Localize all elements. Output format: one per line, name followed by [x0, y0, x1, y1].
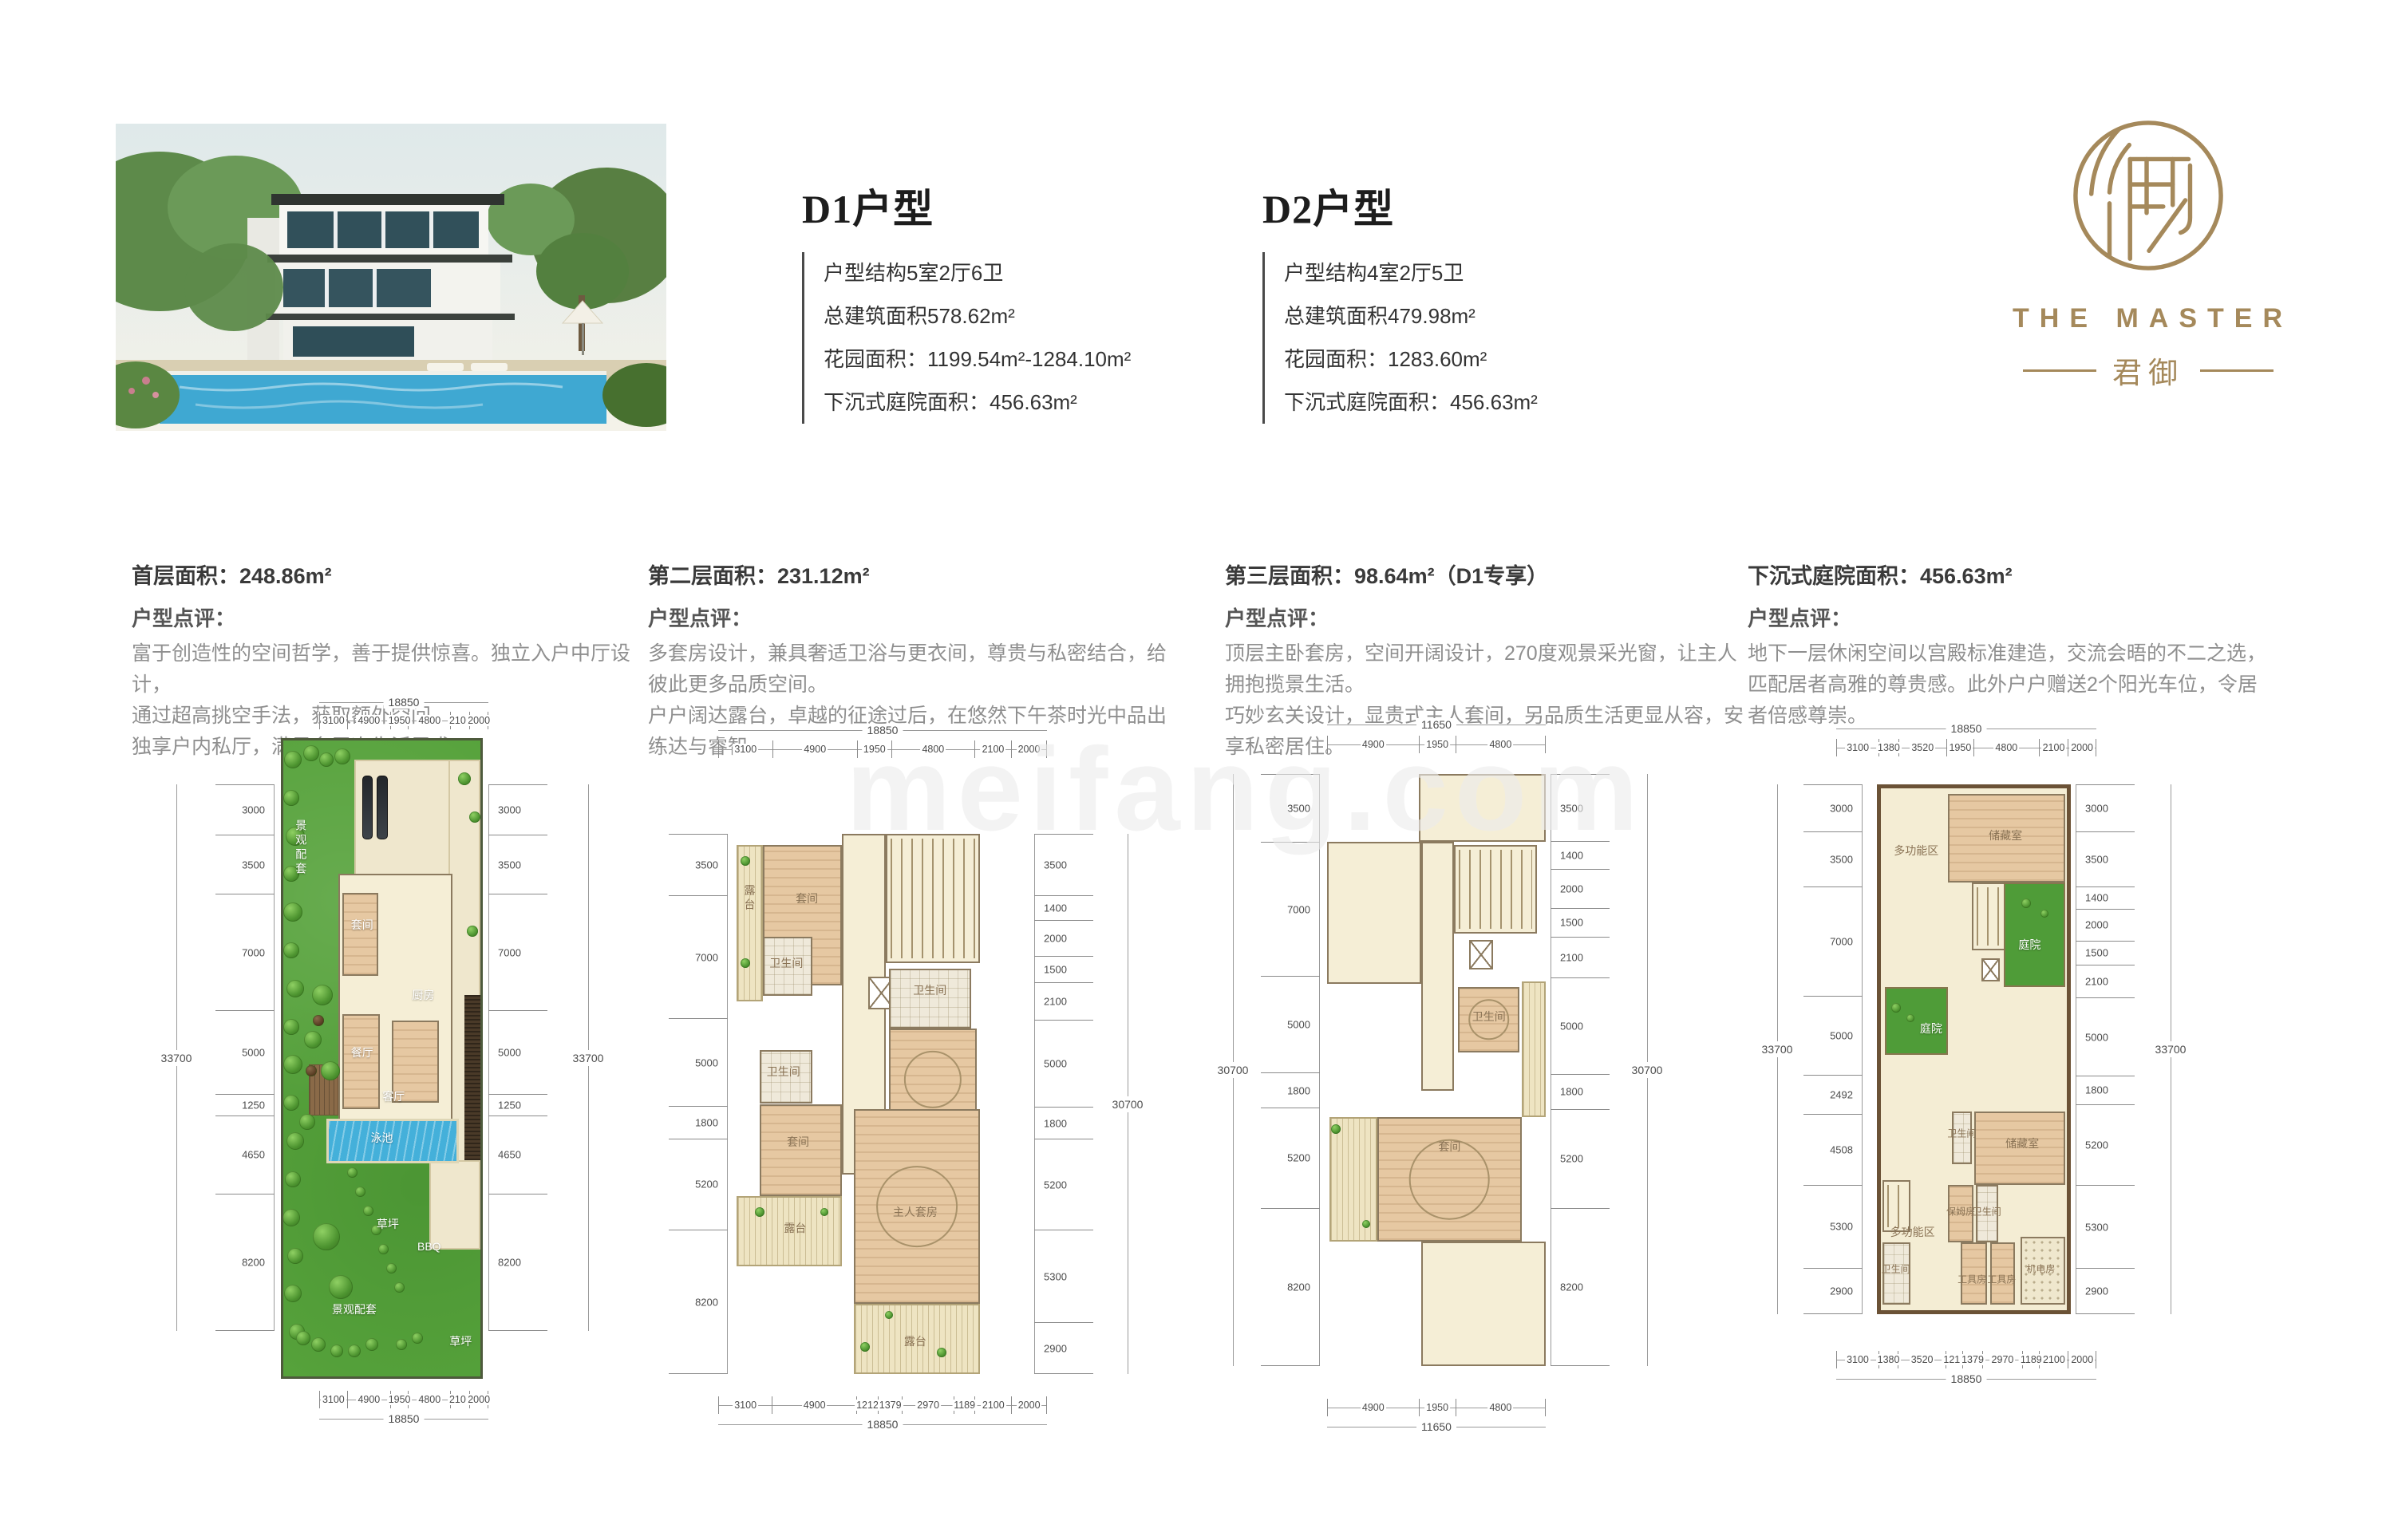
dim-segment-label: 1212 [855, 1400, 880, 1411]
unit-d2-total-area: 总建筑面积479.98m² [1284, 300, 1709, 330]
dim-segment-label: 1800 [1042, 1116, 1069, 1130]
dim-bottom-segments: 490019504800 [1327, 1399, 1546, 1416]
dim-segment-label: 7000 [496, 946, 523, 959]
brand-name: THE MASTER [2013, 303, 2284, 334]
dim-segment-label: 5000 [1558, 1019, 1585, 1033]
room-label: 厨房 [412, 987, 434, 1003]
dim-segment: 1379 [1962, 1351, 1981, 1368]
dim-segment-label: 8200 [1558, 1281, 1585, 1294]
dim-segment-label: 7000 [693, 950, 720, 964]
dim-segment: 5300 [1803, 1185, 1863, 1268]
dim-segment-label: 3100 [321, 715, 346, 726]
dim-segment: 5300 [1034, 1230, 1093, 1322]
dim-segment-label: 4800 [417, 715, 442, 726]
dim-segment-label: 2000 [2069, 1354, 2095, 1365]
dim-segment: 2000 [1011, 740, 1047, 758]
plan-area [429, 1160, 480, 1250]
section-basement-area: 下沉式庭院面积：456.63m² [1748, 559, 2274, 590]
dim-segment-label: 1250 [496, 1099, 523, 1112]
unit-d1-card: D1户型 户型结构5室2厅6卫 总建筑面积578.62m² 花园面积：1199.… [802, 177, 1249, 424]
dim-segment: 3500 [669, 834, 728, 895]
dim-segment: 1950 [1419, 1399, 1456, 1416]
brand-logo: THE MASTER 君御 [2013, 116, 2284, 392]
room-label: 卫生间 [1882, 1262, 1910, 1275]
dim-segment-label: 5000 [1042, 1057, 1069, 1071]
dim-segment-label: 1950 [1424, 739, 1450, 750]
dim-segment-label: 8200 [496, 1255, 523, 1269]
tree-icon [1891, 1003, 1901, 1013]
elevator-icon [1469, 940, 1493, 969]
dim-segment-label: 1380 [1876, 1354, 1902, 1365]
room-label: 卫生间 [913, 982, 946, 998]
room-label: 客厅 [382, 1088, 405, 1104]
dim-segment-label: 2900 [1828, 1284, 1855, 1297]
dim-total-label: 30700 [1630, 1062, 1665, 1078]
tree-icon [363, 1206, 373, 1216]
dim-segment-label: 1950 [1424, 1402, 1450, 1413]
dim-segment: 1250 [488, 1094, 547, 1116]
room-label: 保姆房 [1946, 1204, 1975, 1218]
dim-segment-label: 1950 [862, 744, 887, 755]
dim-segment-label: 4650 [496, 1148, 523, 1162]
dim-segment: 2970 [1982, 1351, 2023, 1368]
dim-segment-label: 2000 [2069, 742, 2095, 753]
dim-segment-label: 7000 [1828, 935, 1855, 949]
shrub-icon [306, 1065, 317, 1076]
dim-right-segments: 3000350014002000150021005000180052005300… [2076, 784, 2135, 1314]
dim-bottom-total: 18850 [1836, 1371, 2096, 1387]
room-label: 景观配套 [293, 819, 309, 877]
dim-segment: 1212 [856, 1396, 878, 1414]
section-level1-desc: 首层面积：248.86m² 户型点评： 富于创造性的空间哲学，善于提供惊喜。独立… [132, 559, 658, 763]
dim-segment: 8200 [669, 1230, 728, 1374]
dim-segment-label: 4800 [920, 744, 946, 755]
dim-right-segments: 3500140020001500210050001800520053002900 [1034, 834, 1093, 1374]
dim-segment: 2000 [2068, 1351, 2096, 1368]
dim-segment: 1950 [1419, 736, 1456, 753]
dim-segment: 3100 [1836, 1351, 1878, 1368]
dim-segment-label: 3500 [693, 859, 720, 872]
brochure-page: D1户型 户型结构5室2厅6卫 总建筑面积578.62m² 花园面积：1199.… [0, 0, 2394, 1540]
dim-left-total: 33700 [160, 784, 193, 1331]
dim-segment: 5000 [1803, 996, 1863, 1074]
dim-segment: 1250 [215, 1094, 275, 1116]
dim-segment: 1950 [1946, 739, 1973, 756]
room-label: 多功能区 [1894, 843, 1938, 859]
dim-segment-label: 2900 [2084, 1284, 2110, 1297]
dim-right-segments: 3000350070005000125046508200 [488, 784, 547, 1331]
dim-segment: 1500 [2076, 941, 2135, 965]
tree-icon [312, 985, 333, 1005]
dim-segment-label: 3100 [733, 1400, 758, 1411]
dim-segment: 1800 [669, 1106, 728, 1138]
dim-left-segments: 350070005000180052008200 [669, 834, 728, 1374]
plan-area [1377, 1117, 1522, 1242]
dim-bottom-segments: 31004900121213792970118921002000 [718, 1396, 1047, 1414]
plan-area [760, 1104, 842, 1196]
plan-area [1454, 845, 1537, 934]
comment-line: 富于创造性的空间哲学，善于提供惊喜。独立入户中厅设计， [132, 638, 658, 701]
plan-area [1327, 842, 1421, 984]
dim-segment-label: 2100 [981, 744, 1006, 755]
dim-segment-label: 1950 [387, 715, 413, 726]
tree-icon [741, 856, 750, 866]
dim-segment-label: 7000 [240, 946, 267, 959]
dim-segment: 1400 [2076, 886, 2135, 909]
dim-segment-label: 1950 [1947, 742, 1973, 753]
dim-segment: 8200 [215, 1194, 275, 1331]
dim-segment-label: 1800 [1286, 1084, 1312, 1097]
dim-segment-label: 5300 [1042, 1270, 1069, 1283]
dim-segment-label: 3500 [2084, 852, 2110, 866]
dim-segment: 1800 [1551, 1074, 1610, 1109]
dim-segment-label: 1400 [1558, 849, 1585, 863]
tree-icon [286, 980, 304, 997]
dim-total-label: 11650 [1416, 718, 1456, 731]
comment-line: 地下一层休闲空间以宫殿标准建造，交流会晤的不二之选， [1748, 638, 2274, 669]
dim-segment: 2000 [2076, 909, 2135, 941]
plan-area [2004, 883, 2065, 987]
dim-segment-label: 3100 [321, 1394, 346, 1405]
dim-segment-label: 2000 [1017, 744, 1042, 755]
dim-segment: 1800 [2076, 1076, 2135, 1104]
dim-segment-label: 2100 [2041, 1354, 2067, 1365]
tree-icon [820, 1208, 828, 1216]
dim-segment: 2100 [974, 1396, 1011, 1414]
dim-segment-label: 2100 [1558, 951, 1585, 965]
dim-segment-label: 1250 [240, 1099, 267, 1112]
room-label: 套间 [351, 917, 373, 933]
tree-icon [283, 790, 299, 806]
tree-icon [303, 745, 319, 761]
room-label: 套间 [1438, 1139, 1460, 1155]
dim-total-label: 18850 [1946, 722, 1987, 735]
dim-segment: 5300 [2076, 1185, 2135, 1268]
unit-d1-structure: 户型结构5室2厅6卫 [824, 257, 1249, 286]
dim-segment-label: 5300 [1828, 1220, 1855, 1234]
dim-total-label: 18850 [1946, 1372, 1987, 1385]
dim-left-segments: 3000350070005000125046508200 [215, 784, 275, 1331]
dim-segment-label: 2100 [981, 1400, 1006, 1411]
dim-segment-label: 2970 [1990, 1354, 2016, 1365]
dim-total-label: 18850 [384, 1412, 425, 1425]
dim-total-label: 11650 [1416, 1420, 1456, 1433]
room-label: 卫生间 [1472, 1009, 1506, 1025]
dim-segment: 1189 [954, 1396, 974, 1414]
dim-segment: 5200 [1551, 1109, 1610, 1209]
tree-icon [282, 1209, 300, 1226]
dim-segment: 1400 [1551, 841, 1610, 868]
unit-d2-card: D2户型 户型结构4室2厅5卫 总建筑面积479.98m² 花园面积：1283.… [1262, 177, 1709, 424]
dim-segment: 4900 [347, 1391, 390, 1408]
dim-segment-label: 5000 [1286, 1018, 1312, 1032]
plan-area [737, 845, 763, 1001]
room-label: 储藏室 [2005, 1135, 2039, 1151]
room-label: 草坪 [377, 1216, 399, 1232]
section-level2-area: 第二层面积：231.12m² [648, 559, 1175, 590]
dim-total-label: 33700 [160, 1050, 194, 1066]
dim-segment: 1500 [1034, 956, 1093, 983]
dim-segment: 4800 [408, 1391, 450, 1408]
section-basement-comment: 地下一层休闲空间以宫殿标准建造，交流会晤的不二之选，匹配居者高雅的尊贵感。此外户… [1748, 638, 2274, 732]
dim-segment-label: 3500 [1828, 853, 1855, 867]
dim-segment-label: 3000 [1828, 802, 1855, 815]
dim-segment: 4650 [215, 1116, 275, 1194]
dim-left-segments: 30003500700050002492450853002900 [1803, 784, 1863, 1314]
dim-bottom-total: 18850 [718, 1416, 1047, 1432]
dim-segment: 2900 [1034, 1322, 1093, 1374]
dim-segment-label: 2100 [2041, 742, 2067, 753]
dim-segment: 5000 [2076, 997, 2135, 1076]
dim-segment-label: 1500 [1042, 962, 1069, 976]
dim-segment-label: 2000 [1558, 882, 1585, 895]
dim-total-label: 33700 [2154, 1041, 2188, 1057]
dim-segment: 4900 [1327, 736, 1419, 753]
brand-cn-text: 君御 [2112, 349, 2184, 392]
tree-icon [348, 1345, 361, 1357]
dim-segment: 3500 [2076, 831, 2135, 886]
dim-segment-label: 1379 [878, 1400, 903, 1411]
dim-segment: 3100 [319, 712, 347, 729]
dim-right-segments: 350014002000150021005000180052008200 [1551, 774, 1610, 1366]
tree-icon [1906, 1014, 1914, 1022]
dim-segment-label: 4800 [1993, 742, 2019, 753]
dim-segment: 3100 [319, 1391, 347, 1408]
section-level2-comment-label: 户型点评： [648, 602, 1175, 632]
dim-segment: 3000 [2076, 784, 2135, 831]
dim-segment: 2900 [2076, 1268, 2135, 1314]
dim-segment: 2000 [469, 712, 488, 729]
dim-segment-label: 4800 [1487, 1402, 1513, 1413]
dim-segment-label: 5200 [1042, 1178, 1069, 1191]
dim-top-total: 11650 [1327, 717, 1546, 732]
dim-segment: 3100 [718, 740, 772, 758]
plan-drawing: 景观配套套间厨房餐厅客厅泳池草坪BBQ景观配套草坪 [281, 738, 483, 1379]
section-level1-area: 首层面积：248.86m² [132, 559, 658, 590]
room-label: 储藏室 [1989, 827, 2022, 843]
comment-line: 多套房设计，兼具奢适卫浴与更衣间，尊贵与私密结合，给彼此更多品质空间。 [648, 638, 1175, 701]
dim-total-label: 18850 [384, 696, 425, 709]
dim-segment-label: 1800 [1558, 1085, 1585, 1099]
dim-segment-label: 3100 [1845, 742, 1871, 753]
brand-emblem-icon [2069, 116, 2227, 274]
unit-d2-garden-area: 花园面积：1283.60m² [1284, 343, 1709, 373]
dim-total-label: 18850 [863, 724, 903, 736]
dim-left-total: 30700 [1216, 774, 1250, 1366]
dim-segment: 4900 [1327, 1399, 1419, 1416]
dim-segment: 3000 [488, 784, 547, 835]
plan-area [342, 893, 377, 976]
dim-segment: 2000 [1011, 1396, 1047, 1414]
dim-segment: 1800 [1034, 1107, 1093, 1139]
unit-d1-title: D1户型 [802, 177, 1249, 235]
dim-total-label: 33700 [571, 1050, 606, 1066]
brand-rule-right [2200, 369, 2274, 372]
dim-segment-label: 2970 [915, 1400, 941, 1411]
tree-icon [937, 1348, 946, 1357]
tree-icon [296, 1331, 310, 1345]
dim-segment-label: 4900 [802, 744, 828, 755]
dim-segment: 1800 [1261, 1072, 1320, 1108]
plan-drawing: 多功能区储藏室庭院庭院卫生间储藏室保姆房卫生间机电房多功能区卫生间工具房工具房 [1877, 784, 2071, 1314]
dim-segment: 2492 [1803, 1075, 1863, 1114]
dim-segment-label: 2100 [1042, 995, 1069, 1009]
dim-segment-label: 1950 [387, 1394, 413, 1405]
section-basement-desc: 下沉式庭院面积：456.63m² 户型点评： 地下一层休闲空间以宫殿标准建造，交… [1748, 559, 2274, 732]
dim-top-segments: 310049001950480021002000 [718, 740, 1047, 758]
dim-total-label: 18850 [863, 1418, 903, 1431]
unit-d2-courtyard-area: 下沉式庭院面积：456.63m² [1284, 386, 1709, 416]
dim-segment: 4800 [1456, 1399, 1546, 1416]
dim-segment-label: 5200 [1558, 1152, 1585, 1166]
dim-segment-label: 5000 [240, 1046, 267, 1060]
dim-top-total: 18850 [718, 722, 1047, 738]
car-icon [377, 776, 388, 839]
room-label: 草坪 [449, 1333, 472, 1349]
dim-segment-label: 2492 [1828, 1088, 1855, 1101]
dim-segment-label: 8200 [693, 1295, 720, 1309]
dim-segment: 4900 [772, 1396, 856, 1414]
stairs-icon [891, 839, 974, 958]
dim-segment-label: 5200 [2084, 1139, 2110, 1152]
dim-segment-label: 4900 [356, 715, 381, 726]
dim-segment: 2100 [2039, 1351, 2068, 1368]
dim-segment: 4800 [408, 712, 450, 729]
dim-segment: 7000 [1261, 842, 1320, 977]
tree-icon [287, 1248, 303, 1264]
car-icon [362, 776, 373, 839]
dim-segment: 3500 [1261, 774, 1320, 842]
dim-left-segments: 350070005000180052008200 [1261, 774, 1320, 1366]
plan-drawing: 露台套间卫生间卫生间卫生间套间主人套房露台露台 [737, 834, 1029, 1374]
dim-segment: 2900 [1803, 1268, 1863, 1314]
dim-segment-label: 3500 [1558, 801, 1585, 815]
unit-d1-courtyard-area: 下沉式庭院面积：456.63m² [824, 386, 1249, 416]
tree-icon [329, 1275, 353, 1299]
plan-area [342, 1014, 380, 1110]
dim-left-total: 33700 [1760, 784, 1794, 1314]
plan-area [889, 969, 971, 1028]
dim-right-total: 30700 [1630, 774, 1664, 1366]
dim-segment: 3100 [1836, 739, 1878, 756]
room-label: 卫生间 [1973, 1204, 2001, 1218]
dim-segment-label: 2000 [2084, 918, 2110, 932]
dim-segment: 1950 [857, 740, 891, 758]
dim-segment: 4900 [347, 712, 390, 729]
room-label: 露台 [904, 1333, 926, 1349]
dim-segment-label: 1189 [2019, 1354, 2044, 1365]
brand-rule-left [2023, 369, 2096, 372]
room-label: 露台 [742, 884, 758, 913]
dim-segment: 5200 [669, 1139, 728, 1230]
dim-segment-label: 4508 [1828, 1143, 1855, 1156]
dim-segment: 7000 [669, 895, 728, 1018]
dim-segment: 7000 [1803, 886, 1863, 996]
tree-icon [286, 1132, 304, 1150]
dim-segment: 2970 [902, 1396, 954, 1414]
dim-segment-label: 2000 [1017, 1400, 1042, 1411]
dim-segment-label: 1500 [2084, 946, 2110, 960]
room-label: 露台 [784, 1220, 806, 1236]
dim-segment: 7000 [488, 894, 547, 1010]
dim-segment-label: 1189 [952, 1400, 977, 1411]
villa-photo-image [116, 124, 666, 431]
tree-icon [304, 1031, 322, 1048]
room-label: 机电房 [2026, 1262, 2055, 1275]
dim-segment-label: 5200 [693, 1178, 720, 1191]
dim-segment: 1379 [878, 1396, 902, 1414]
dim-bottom-segments: 310049001950480021002000 [319, 1391, 488, 1408]
dim-segment: 4800 [1973, 739, 2039, 756]
section-level3-comment-label: 户型点评： [1225, 602, 1752, 632]
dim-segment: 2000 [469, 1391, 488, 1408]
dim-segment: 4800 [1456, 736, 1546, 753]
room-label: 主人套房 [893, 1204, 938, 1220]
dim-segment: 5000 [1551, 977, 1610, 1073]
dim-segment: 5200 [1034, 1139, 1093, 1230]
dim-segment: 7000 [215, 894, 275, 1010]
room-label: 工具房 [1957, 1272, 1986, 1285]
room-label: 泳池 [371, 1130, 393, 1146]
dim-segment-label: 1379 [1960, 1354, 1985, 1365]
dim-segment: 2000 [1034, 920, 1093, 955]
dim-segment-label: 2000 [466, 715, 492, 726]
dim-segment-label: 2900 [1042, 1341, 1069, 1355]
dim-segment: 5000 [669, 1018, 728, 1106]
plan-area [1522, 981, 1546, 1118]
dim-bottom-total: 18850 [319, 1411, 488, 1427]
dim-segment: 1950 [390, 712, 408, 729]
dim-segment: 3500 [1551, 774, 1610, 841]
room-label: 套间 [796, 890, 818, 906]
dim-segment: 2000 [2068, 739, 2096, 756]
dim-segment-label: 2100 [2084, 974, 2110, 988]
unit-d2-structure: 户型结构4室2厅5卫 [1284, 257, 1709, 286]
tree-icon [458, 772, 471, 785]
dim-segment: 3520 [1898, 739, 1946, 756]
room-label: 套间 [787, 1134, 809, 1150]
room-label: 餐厅 [351, 1044, 373, 1060]
tree-icon [283, 1019, 299, 1035]
stairs-icon [1887, 1185, 1906, 1227]
dim-segment-label: 1800 [693, 1116, 720, 1129]
tree-icon [313, 1223, 340, 1250]
dim-segment-label: 3500 [240, 858, 267, 871]
dim-top-segments: 3100138035201950480021002000 [1836, 739, 2096, 756]
dim-segment: 3500 [1803, 831, 1863, 886]
elevator-icon [1981, 958, 2000, 981]
dim-segment-label: 2000 [466, 1394, 492, 1405]
dim-top-segments: 490019504800 [1327, 736, 1546, 753]
dim-segment-label: 4650 [240, 1148, 267, 1162]
dim-segment-label: 1800 [2084, 1084, 2110, 1097]
tree-icon [2021, 898, 2031, 908]
dim-segment: 1950 [390, 1391, 408, 1408]
dim-segment: 5200 [2076, 1104, 2135, 1186]
dim-segment-label: 4800 [417, 1394, 442, 1405]
dim-segment-label: 5000 [693, 1056, 720, 1069]
room-label: 卫生间 [769, 955, 803, 971]
dim-segment: 3500 [488, 835, 547, 894]
comment-line: 顶层主卧套房，空间开阔设计，270度观景采光窗，让主人拥抱揽景生活。 [1225, 638, 1752, 701]
section-level3-area: 第三层面积：98.64m²（D1专享） [1225, 559, 1752, 590]
dim-segment: 3500 [215, 835, 275, 894]
tree-icon [469, 811, 480, 823]
plan-area [1419, 774, 1546, 842]
room-label: BBQ [417, 1240, 441, 1253]
dim-segment-label: 3520 [1910, 742, 1935, 753]
dim-segment: 1380 [1878, 1351, 1898, 1368]
